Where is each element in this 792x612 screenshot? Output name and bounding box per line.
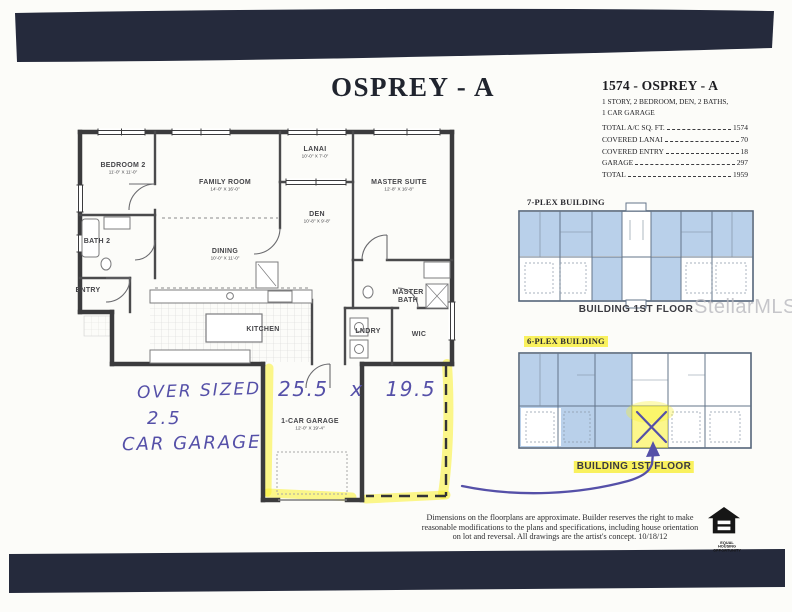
disclaimer-line2: reasonable modifications to the plans an… [414,523,706,533]
info-row-value: 297 [737,157,748,169]
info-subtitle-1: 1 STORY, 2 BEDROOM, DEN, 2 BATHS, [602,97,748,107]
room-label-entry: ENTRY [76,287,101,295]
info-subtitle-2: 1 CAR GARAGE [602,108,748,118]
mls-watermark: StellarMLS [694,296,792,319]
info-row-label: GARAGE [602,157,633,169]
room-name: 1-CAR GARAGE [281,418,339,426]
info-row-total: TOTAL 1959 [602,169,748,181]
info-row-label: COVERED LANAI [602,134,663,146]
room-dims: 12'-8" X 16'-8" [381,187,418,192]
handwritten-garage-dims: 25.5 x 19.5 [278,377,436,401]
six-plex-label: 6-PLEX BUILDING [524,336,608,347]
info-row-value: 1959 [733,169,748,181]
room-label-garage: 1-CAR GARAGE 12'-0" X 19'-4" [281,418,339,433]
room-name: LANAI [295,146,335,154]
equal-housing-text: EQUAL HOUSING OPPORTUNITY [713,541,742,553]
room-dims: 12'-0" X 19'-4" [291,426,329,431]
room-name: WIC [412,331,427,339]
room-label-den: DEN 10'-8" X 9'-8" [297,211,337,226]
dotted-leader [628,175,731,177]
text-layer: OSPREY - A 1574 - OSPREY - A 1 STORY, 2 … [0,0,792,612]
room-name: MASTER BATH [389,289,427,304]
room-name: DINING [203,248,247,256]
info-panel-title: 1574 - OSPREY - A [602,78,748,94]
six-plex-caption: BUILDING 1ST FLOOR [574,461,694,473]
scanned-floorplan-sheet: { "page": { "title": "OSPREY - A", "wate… [0,0,792,612]
room-dims: 11'-0" X 11'-0" [108,170,138,175]
room-name: FAMILY ROOM [199,179,251,187]
info-row-value: 18 [741,146,749,158]
room-label-family-room: FAMILY ROOM 14'-0" X 16'-0" [199,179,251,194]
info-row-covered-lanai: COVERED LANAI 70 [602,134,748,146]
disclaimer-line3: on lot and reversal. All drawings are th… [414,532,706,542]
room-label-laundry: LNDRY [355,328,380,336]
room-dims: 10'-0" X 11'-0" [211,256,240,261]
room-name: DEN [297,211,337,219]
room-name: BATH 2 [84,238,111,246]
disclaimer: Dimensions on the floorplans are approxi… [414,513,706,542]
info-row-value: 1574 [733,122,748,134]
info-row-label: TOTAL A/C SQ. FT. [602,122,665,134]
page-title: OSPREY - A [331,72,495,103]
room-label-bedroom2: BEDROOM 2 11'-0" X 11'-0" [100,162,145,177]
room-label-dining: DINING 10'-0" X 11'-0" [203,248,247,263]
room-label-kitchen: KITCHEN [246,326,279,334]
room-name: ENTRY [76,287,101,295]
info-row-value: 70 [741,134,749,146]
room-label-master-suite: MASTER SUITE 12'-8" X 16'-8" [371,179,427,194]
info-row-covered-entry: COVERED ENTRY 18 [602,146,748,158]
room-label-lanai: LANAI 10'-0" X 7'-0" [295,146,335,161]
dotted-leader [635,163,735,165]
disclaimer-line1: Dimensions on the floorplans are approxi… [414,513,706,523]
room-name: LNDRY [355,328,380,336]
seven-plex-caption: BUILDING 1ST FLOOR [579,304,693,315]
equal-housing-line1: EQUAL HOUSING [713,541,742,549]
info-row-label: TOTAL [602,169,626,181]
room-dims: 10'-8" X 9'-8" [304,219,331,224]
info-row-label: COVERED ENTRY [602,146,664,158]
info-panel: 1574 - OSPREY - A 1 STORY, 2 BEDROOM, DE… [602,78,748,181]
room-name: KITCHEN [246,326,279,334]
handwritten-oversized-line2: 2.5 [147,408,182,429]
room-name: MASTER SUITE [371,179,427,187]
equal-housing-line2: OPPORTUNITY [713,549,742,553]
dotted-leader [665,140,739,142]
handwritten-oversized-line3: CAR GARAGE [122,432,262,455]
info-row-garage: GARAGE 297 [602,157,748,169]
room-name: BEDROOM 2 [100,162,145,170]
dotted-leader [667,128,731,130]
room-label-bath2: BATH 2 [84,238,111,246]
info-row-ac-sqft: TOTAL A/C SQ. FT. 1574 [602,122,748,134]
handwritten-oversized-line1: OVER SIZED [137,379,262,403]
room-label-master-bath: MASTER BATH [389,289,427,304]
room-dims: 10'-0" X 7'-0" [302,154,329,159]
room-dims: 14'-0" X 16'-0" [208,187,242,192]
room-label-wic: WIC [412,331,427,339]
dotted-leader [666,152,739,154]
seven-plex-label: 7-PLEX BUILDING [527,197,605,207]
